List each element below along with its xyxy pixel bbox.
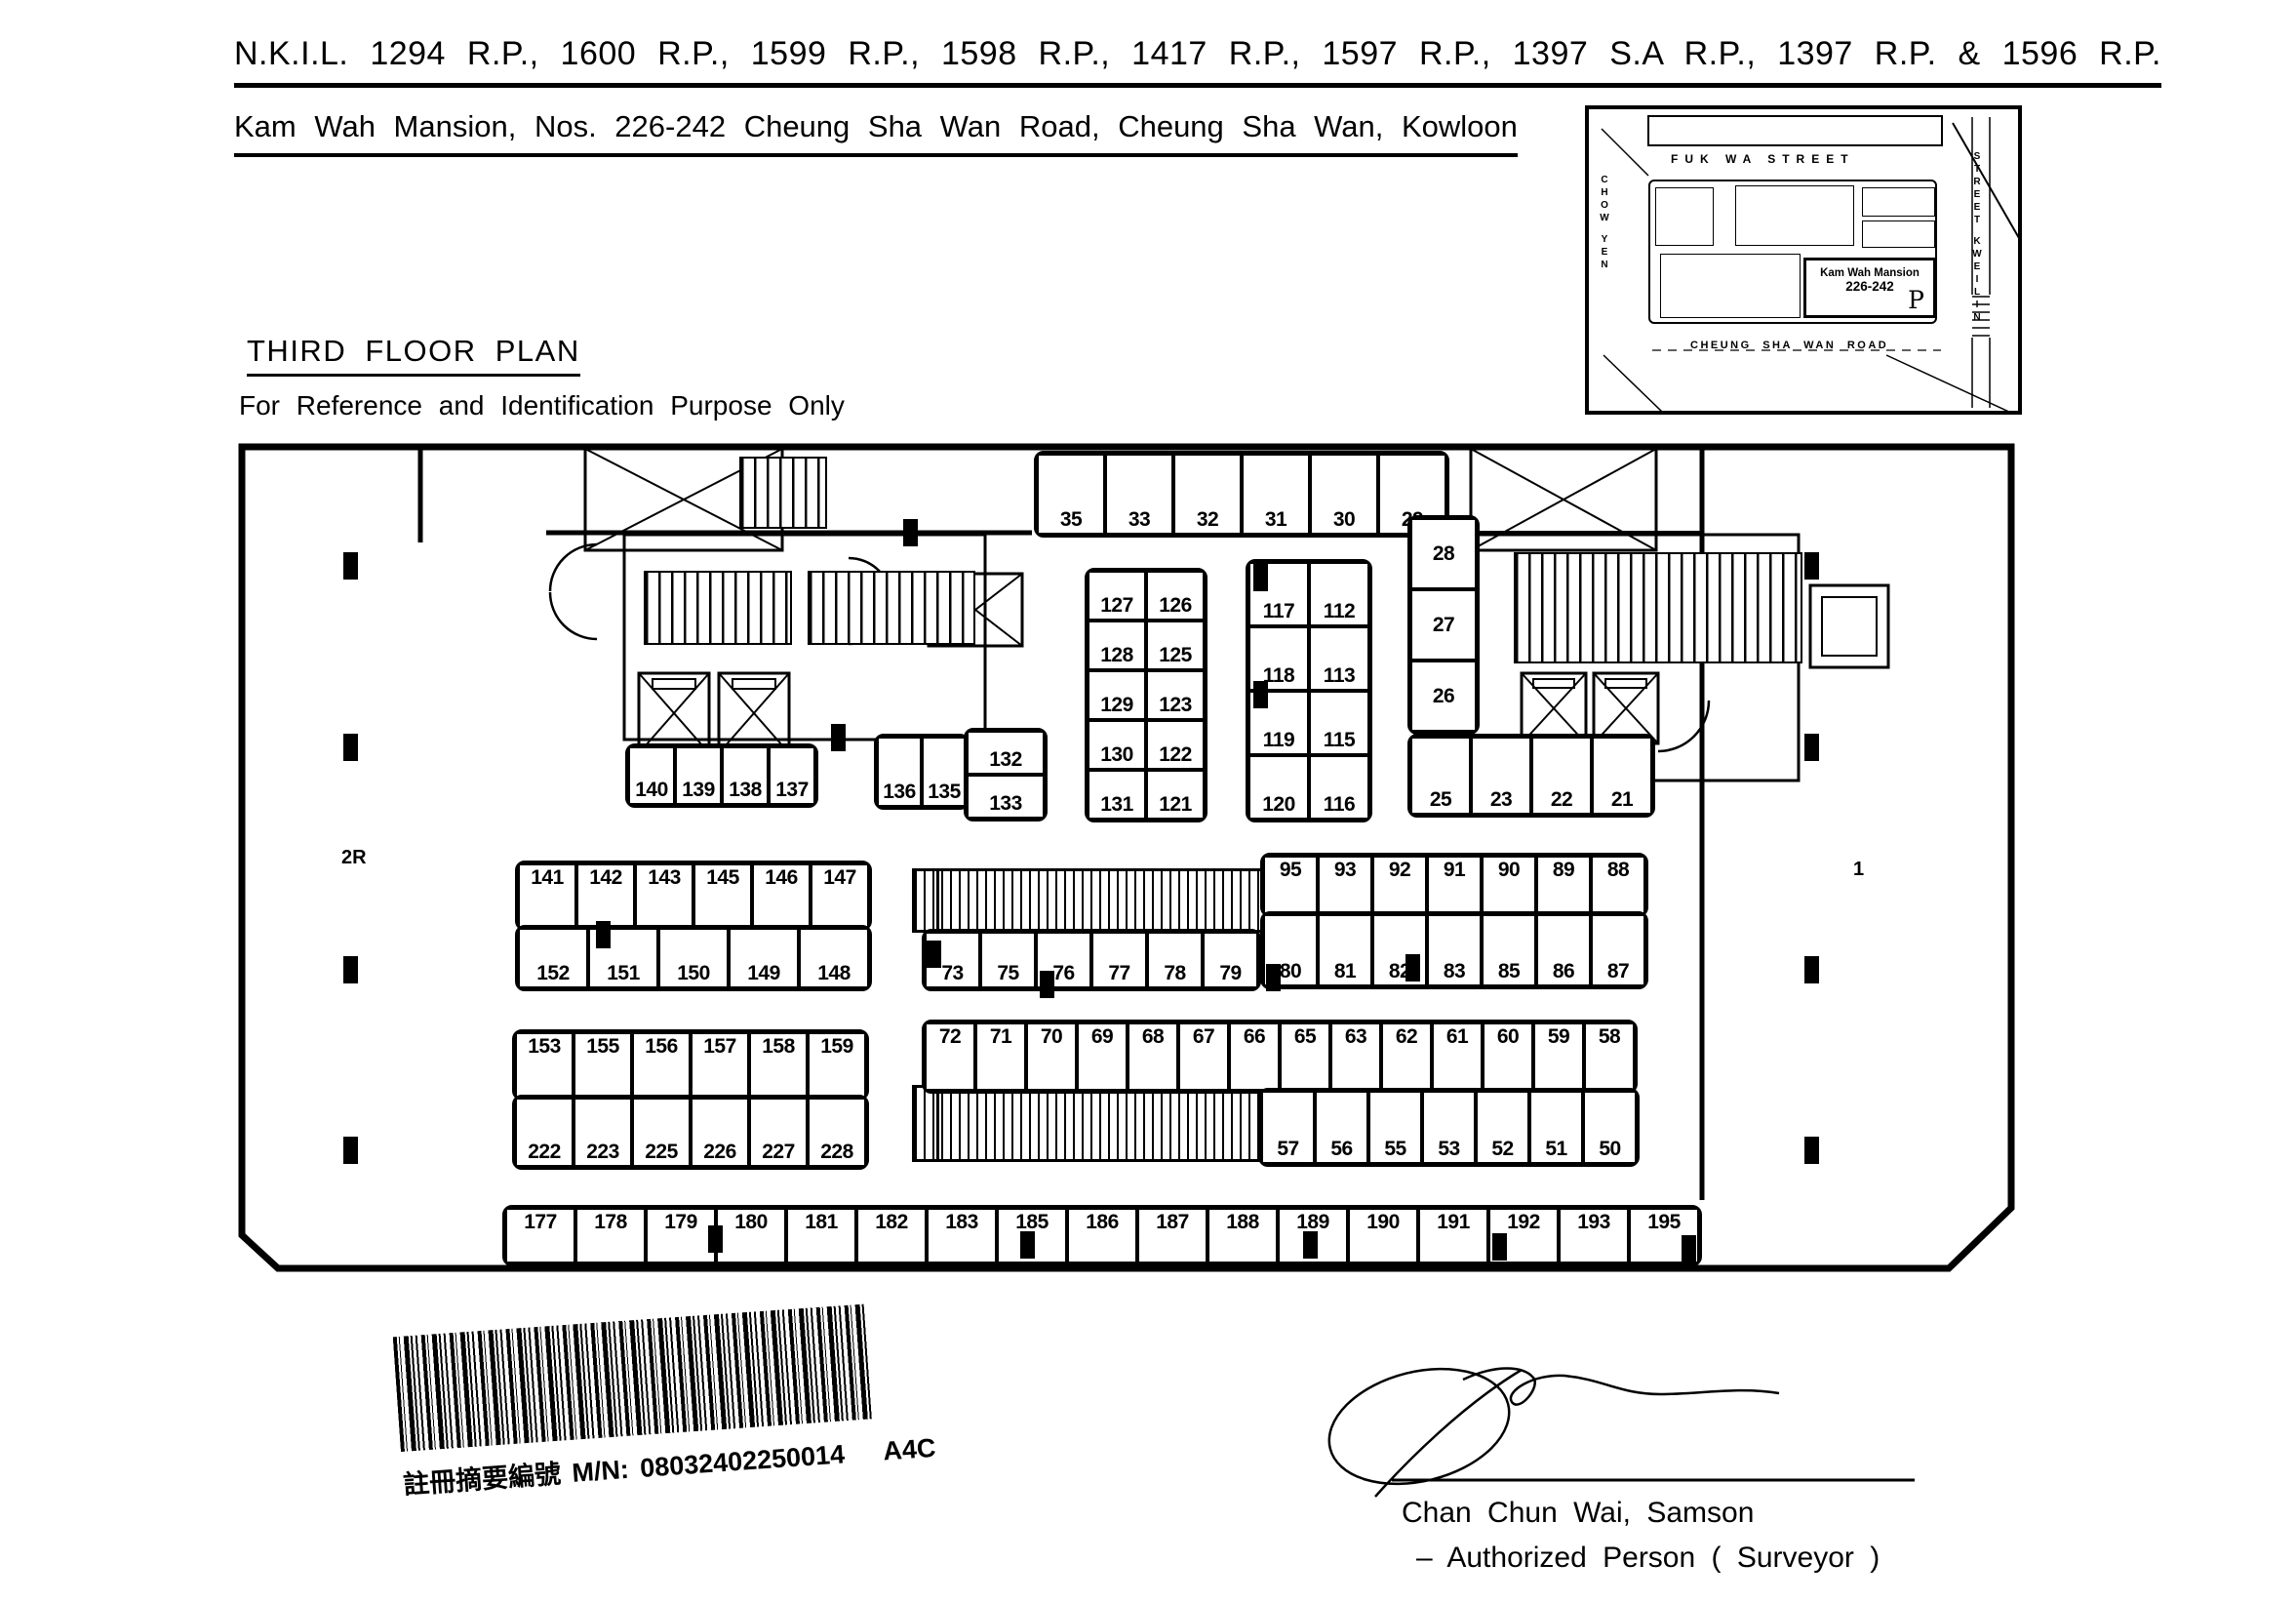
parking-bay-number: 225 [635, 1141, 688, 1164]
parking-bay: 181 [786, 1208, 856, 1263]
parking-bay: 228 [808, 1098, 866, 1167]
parking-bay: 113 [1309, 626, 1369, 691]
parking-bay: 53 [1422, 1091, 1476, 1164]
parking-bay: 155 [574, 1032, 632, 1098]
parking-bay-number: 142 [579, 866, 632, 890]
parking-bay: 129 [1088, 670, 1146, 720]
column-marker [1804, 734, 1819, 761]
map-building-block [1862, 220, 1935, 248]
map-building-block [1647, 115, 1943, 146]
parking-bay: 152 [518, 928, 588, 988]
column-marker [1266, 964, 1281, 991]
parking-bay-number: 228 [811, 1141, 863, 1164]
parking-bay: 67 [1178, 1022, 1229, 1091]
map-street-word: YEN [1597, 233, 1612, 271]
parking-bay-number: 51 [1532, 1138, 1580, 1161]
parking-bay-number: 122 [1149, 743, 1202, 767]
parking-bay-number: 91 [1430, 859, 1479, 882]
parking-bay: 57 [1261, 1091, 1315, 1164]
parking-bay-group-row-72: 7271706968676665636261605958 [922, 1020, 1638, 1094]
map-building-block [1735, 185, 1854, 246]
parking-bay-number: 52 [1479, 1138, 1526, 1161]
column-marker [708, 1225, 723, 1253]
signatory-role: – Authorized Person ( Surveyor ) [1416, 1542, 1880, 1575]
parking-bay: 140 [628, 746, 675, 805]
plan-title: THIRD FLOOR PLAN [247, 334, 580, 377]
parking-bay-group-strip-28: 282726 [1407, 515, 1480, 735]
stair-flight [644, 571, 792, 645]
parking-bay-number: 126 [1149, 594, 1202, 618]
map-building-block [1655, 187, 1714, 246]
column-marker [1040, 971, 1054, 998]
parking-bay-number: 188 [1210, 1211, 1275, 1234]
parking-bay: 75 [980, 932, 1036, 988]
parking-bay: 65 [1280, 1022, 1330, 1091]
map-street-cheung-sha-wan-road: CHEUNG SHA WAN ROAD [1690, 340, 1888, 351]
parking-bay: 61 [1432, 1022, 1483, 1091]
column-marker [343, 1137, 358, 1164]
column-marker [1253, 681, 1268, 708]
parking-bay-number: 159 [811, 1035, 863, 1059]
map-parking-symbol: P [1908, 286, 1924, 314]
parking-bay-number: 83 [1430, 960, 1479, 983]
parking-bay-number: 32 [1176, 508, 1239, 532]
column-marker [1804, 956, 1819, 983]
parking-bay: 51 [1529, 1091, 1583, 1164]
parking-bay: 223 [574, 1098, 632, 1167]
parking-bay: 92 [1372, 856, 1427, 914]
building-title: Kam Wah Mansion, Nos. 226-242 Cheung Sha… [234, 109, 1518, 157]
parking-bay: 30 [1310, 454, 1378, 535]
parking-bay: 23 [1471, 737, 1531, 815]
parking-bay: 91 [1427, 856, 1482, 914]
parking-bay-group-row-73: 737576777879 [922, 929, 1261, 991]
parking-bay-number: 88 [1594, 859, 1643, 882]
parking-bay: 187 [1137, 1208, 1207, 1263]
parking-bay-number: 116 [1312, 793, 1366, 817]
lot-title: N.K.I.L. 1294 R.P., 1600 R.P., 1599 R.P.… [234, 35, 2161, 88]
column-marker [1303, 1231, 1318, 1259]
map-kam-wah-name: Kam Wah Mansion [1806, 267, 1933, 279]
column-marker [1804, 1137, 1819, 1164]
utility-shaft [1810, 585, 1888, 667]
parking-bay-number: 145 [696, 866, 749, 890]
map-street-word: STREET [1969, 150, 1985, 226]
column-marker [1253, 564, 1268, 591]
parking-bay-number: 138 [725, 779, 766, 802]
parking-bay: 133 [967, 775, 1045, 819]
parking-bay-number: 53 [1425, 1138, 1473, 1161]
map-street-yen-chow: CHOWYEN [1597, 174, 1612, 280]
parking-bay-group-block-95-bottom: 80818283858687 [1260, 911, 1648, 989]
parking-bay-group-block-95-top: 95939291908988 [1260, 853, 1648, 917]
column-marker [1020, 1231, 1035, 1259]
parking-bay: 226 [691, 1098, 749, 1167]
parking-bay-number: 153 [518, 1035, 571, 1059]
parking-bay-group-row-25: 25232221 [1407, 734, 1655, 818]
parking-bay: 182 [856, 1208, 927, 1263]
parking-bay-number: 56 [1318, 1138, 1366, 1161]
parking-bay-number: 179 [649, 1211, 713, 1234]
parking-bay-group-row-57: 57565553525150 [1258, 1088, 1640, 1167]
parking-bay-number: 129 [1090, 694, 1143, 717]
parking-bay: 123 [1146, 670, 1205, 720]
parking-bay: 193 [1559, 1208, 1629, 1263]
parking-bay: 115 [1309, 691, 1369, 755]
parking-bay: 22 [1531, 737, 1592, 815]
parking-bay-number: 112 [1312, 600, 1366, 623]
map-building-block [1660, 254, 1801, 318]
parking-bay-number: 31 [1245, 508, 1307, 532]
parking-bay-number: 77 [1094, 962, 1144, 985]
parking-bay: 153 [515, 1032, 574, 1098]
parking-bay-number: 152 [521, 962, 585, 985]
stair-flight [808, 571, 975, 645]
parking-bay: 126 [1146, 571, 1205, 621]
parking-bay: 183 [927, 1208, 997, 1263]
parking-bay: 95 [1263, 856, 1318, 914]
escalator-lower [912, 1085, 1281, 1162]
parking-bay: 127 [1088, 571, 1146, 621]
parking-bay-number: 133 [970, 792, 1042, 816]
parking-bay-number: 136 [880, 781, 919, 804]
parking-bay: 141 [518, 863, 576, 928]
parking-bay-number: 137 [772, 779, 812, 802]
parking-bay-number: 25 [1413, 788, 1468, 812]
parking-bay-number: 226 [693, 1141, 746, 1164]
parking-bay-number: 150 [661, 962, 726, 985]
parking-bay-number: 177 [508, 1211, 573, 1234]
parking-bay-number: 35 [1040, 508, 1102, 532]
parking-bay: 50 [1583, 1091, 1637, 1164]
parking-bay-number: 178 [578, 1211, 643, 1234]
parking-bay-number: 146 [755, 866, 808, 890]
parking-bay-number: 181 [789, 1211, 853, 1234]
parking-bay: 148 [799, 928, 869, 988]
area-label-2R: 2R [341, 847, 367, 869]
stair-flight [739, 457, 827, 529]
parking-bay: 66 [1229, 1022, 1280, 1091]
parking-bay: 122 [1146, 720, 1205, 770]
parking-bay-number: 143 [638, 866, 691, 890]
parking-bay: 116 [1309, 755, 1369, 820]
parking-bay-number: 117 [1251, 600, 1306, 623]
parking-bay: 63 [1330, 1022, 1381, 1091]
parking-bay: 135 [922, 737, 967, 807]
parking-bay: 85 [1482, 914, 1536, 986]
parking-bay-number: 50 [1586, 1138, 1634, 1161]
parking-bay: 62 [1381, 1022, 1432, 1091]
parking-bay-number: 227 [752, 1141, 805, 1164]
parking-bay-number: 132 [970, 748, 1042, 772]
parking-bay: 191 [1418, 1208, 1488, 1263]
column-marker [596, 921, 611, 948]
parking-bay: 59 [1533, 1022, 1584, 1091]
parking-bay: 222 [515, 1098, 574, 1167]
parking-bay-number: 186 [1070, 1211, 1134, 1234]
parking-bay-number: 89 [1539, 859, 1588, 882]
parking-bay-number: 60 [1485, 1025, 1530, 1049]
parking-bay-number: 195 [1632, 1211, 1696, 1234]
parking-bay: 56 [1315, 1091, 1368, 1164]
parking-bay: 25 [1410, 737, 1471, 815]
map-street-kweilin: STREETKWEILIN [1969, 150, 1985, 333]
parking-bay: 128 [1088, 621, 1146, 670]
parking-bay-number: 79 [1206, 962, 1255, 985]
column-marker [903, 519, 918, 546]
parking-bay-number: 21 [1595, 788, 1649, 812]
parking-bay: 72 [925, 1022, 975, 1091]
parking-bay: 31 [1242, 454, 1310, 535]
parking-bay: 90 [1482, 856, 1536, 914]
signatory-name: Chan Chun Wai, Samson [1402, 1497, 1754, 1530]
parking-bay-number: 22 [1534, 788, 1589, 812]
parking-bay-number: 182 [859, 1211, 924, 1234]
lift-shaft [639, 673, 709, 753]
parking-bay: 112 [1309, 562, 1369, 626]
parking-bay: 86 [1536, 914, 1591, 986]
parking-bay-number: 125 [1149, 644, 1202, 667]
parking-bay: 87 [1591, 914, 1645, 986]
parking-bay-number: 120 [1251, 793, 1306, 817]
map-kam-wah-mansion-block: Kam Wah Mansion 226-242 P [1803, 258, 1936, 318]
parking-bay: 78 [1147, 932, 1203, 988]
column-marker [1682, 1235, 1696, 1262]
parking-bay-number: 57 [1264, 1138, 1312, 1161]
parking-bay-number: 121 [1149, 793, 1202, 817]
parking-bay: 143 [635, 863, 693, 928]
parking-bay-number: 55 [1371, 1138, 1419, 1161]
parking-bay: 156 [632, 1032, 691, 1098]
parking-bay-group-row-35-29: 353332313029 [1034, 451, 1449, 538]
parking-bay-number: 70 [1029, 1025, 1074, 1049]
parking-bay-number: 23 [1474, 788, 1528, 812]
parking-bay: 131 [1088, 770, 1146, 820]
parking-bay: 121 [1146, 770, 1205, 820]
column-marker [343, 734, 358, 761]
parking-bay-number: 149 [732, 962, 796, 985]
parking-bay-number: 139 [678, 779, 719, 802]
parking-bay-number: 71 [978, 1025, 1023, 1049]
parking-bay-number: 28 [1413, 542, 1474, 566]
parking-bay: 71 [975, 1022, 1026, 1091]
parking-bay-group-block-141-top: 141142143145146147 [515, 861, 872, 931]
parking-bay: 32 [1173, 454, 1242, 535]
parking-bay-number: 140 [631, 779, 672, 802]
stair-flight [1514, 552, 1802, 663]
registration-stamp: 註冊摘要編號 M/N: 08032402250014 A4C [393, 1302, 911, 1502]
parking-bay: 138 [722, 746, 769, 805]
parking-bay-number: 157 [693, 1035, 746, 1059]
parking-bay-group-island-127: 127126128125129123130122131121 [1085, 568, 1207, 822]
parking-bay-group-row-140: 140139138137 [625, 743, 818, 808]
parking-bay-number: 130 [1090, 743, 1143, 767]
area-label-1: 1 [1853, 859, 1864, 881]
column-marker [831, 724, 846, 751]
parking-bay-group-block-141-bottom: 152151150149148 [515, 925, 872, 991]
parking-bay: 158 [749, 1032, 808, 1098]
parking-bay: 55 [1368, 1091, 1422, 1164]
parking-bay: 58 [1584, 1022, 1635, 1091]
parking-bay-number: 148 [802, 962, 866, 985]
parking-bay: 150 [658, 928, 729, 988]
parking-bay-number: 69 [1080, 1025, 1125, 1049]
parking-bay-number: 90 [1484, 859, 1533, 882]
parking-bay-number: 222 [518, 1141, 571, 1164]
parking-bay-group-block-153-bottom: 222223225226227228 [512, 1095, 869, 1170]
parking-bay-number: 131 [1090, 793, 1143, 817]
parking-bay: 77 [1091, 932, 1147, 988]
parking-bay: 88 [1591, 856, 1645, 914]
parking-bay-number: 93 [1321, 859, 1369, 882]
parking-bay: 28 [1410, 518, 1477, 589]
parking-bay-number: 27 [1413, 614, 1474, 637]
parking-bay-number: 86 [1539, 960, 1588, 983]
parking-bay-number: 135 [925, 781, 964, 804]
parking-bay-number: 59 [1536, 1025, 1581, 1049]
parking-bay-number: 72 [928, 1025, 972, 1049]
parking-bay: 142 [576, 863, 635, 928]
parking-bay: 89 [1536, 856, 1591, 914]
parking-bay: 120 [1248, 755, 1309, 820]
parking-bay: 26 [1410, 661, 1477, 732]
parking-bay: 33 [1105, 454, 1173, 535]
parking-bay: 188 [1207, 1208, 1278, 1263]
parking-bay-number: 127 [1090, 594, 1143, 618]
map-building-block [1862, 187, 1935, 217]
parking-bay-group-row-136: 136135 [874, 734, 970, 810]
parking-bay-number: 87 [1594, 960, 1643, 983]
parking-bay: 69 [1077, 1022, 1128, 1091]
parking-bay-number: 192 [1491, 1211, 1556, 1234]
escalator-upper [912, 868, 1281, 933]
parking-bay-number: 78 [1150, 962, 1200, 985]
parking-bay-number: 191 [1421, 1211, 1485, 1234]
parking-bay: 149 [729, 928, 799, 988]
parking-bay-number: 26 [1413, 685, 1474, 708]
parking-bay: 146 [752, 863, 811, 928]
parking-bay: 35 [1037, 454, 1105, 535]
parking-bay-number: 180 [719, 1211, 783, 1234]
parking-bay: 125 [1146, 621, 1205, 670]
parking-bay: 81 [1318, 914, 1372, 986]
parking-bay: 186 [1067, 1208, 1137, 1263]
parking-bay-number: 113 [1312, 664, 1366, 688]
parking-bay: 190 [1348, 1208, 1418, 1263]
column-marker [1492, 1233, 1507, 1261]
parking-bay: 179 [646, 1208, 716, 1263]
column-marker [343, 956, 358, 983]
parking-bay: 227 [749, 1098, 808, 1167]
parking-bay: 68 [1128, 1022, 1178, 1091]
location-inset-map: FUK WA STREET Kam Wah Mansion 226-242 P … [1585, 105, 2022, 415]
parking-bay-number: 190 [1351, 1211, 1415, 1234]
parking-bay-number: 33 [1108, 508, 1170, 532]
parking-bay-number: 187 [1140, 1211, 1205, 1234]
parking-bay: 137 [769, 746, 815, 805]
parking-bay-number: 62 [1384, 1025, 1429, 1049]
parking-bay-number: 63 [1333, 1025, 1378, 1049]
map-street-word: KWEILIN [1969, 235, 1985, 324]
parking-bay: 70 [1026, 1022, 1077, 1091]
parking-bay-number: 193 [1562, 1211, 1626, 1234]
column-marker [343, 552, 358, 580]
parking-bay-number: 151 [591, 962, 655, 985]
parking-bay-number: 119 [1251, 729, 1306, 752]
parking-bay-number: 92 [1375, 859, 1424, 882]
column-marker [927, 941, 941, 968]
parking-bay-number: 67 [1181, 1025, 1226, 1049]
parking-bay: 130 [1088, 720, 1146, 770]
parking-bay: 136 [877, 737, 922, 807]
map-street-fuk-wa: FUK WA STREET [1671, 152, 1855, 166]
parking-bay: 21 [1592, 737, 1652, 815]
parking-bay-number: 156 [635, 1035, 688, 1059]
parking-bay-number: 65 [1283, 1025, 1327, 1049]
parking-bay: 83 [1427, 914, 1482, 986]
parking-bay-number: 158 [752, 1035, 805, 1059]
parking-bay: 180 [716, 1208, 786, 1263]
stamp-code: A4C [882, 1433, 936, 1466]
column-marker [1804, 552, 1819, 580]
parking-bay: 177 [505, 1208, 575, 1263]
parking-bay-number: 141 [521, 866, 574, 890]
plan-note: For Reference and Identification Purpose… [239, 390, 845, 421]
parking-bay-number: 147 [813, 866, 866, 890]
parking-bay: 60 [1483, 1022, 1533, 1091]
parking-bay-number: 85 [1484, 960, 1533, 983]
parking-bay-number: 58 [1587, 1025, 1632, 1049]
parking-bay: 225 [632, 1098, 691, 1167]
parking-bay-number: 123 [1149, 694, 1202, 717]
parking-bay-number: 128 [1090, 644, 1143, 667]
parking-bay: 159 [808, 1032, 866, 1098]
parking-bay-number: 183 [930, 1211, 994, 1234]
parking-bay-number: 75 [983, 962, 1033, 985]
parking-bay-number: 81 [1321, 960, 1369, 983]
parking-bay: 178 [575, 1208, 646, 1263]
parking-bay-number: 61 [1435, 1025, 1480, 1049]
parking-bay: 93 [1318, 856, 1372, 914]
parking-bay: 157 [691, 1032, 749, 1098]
parking-bay-group-block-153-top: 153155156157158159 [512, 1029, 869, 1101]
parking-bay-number: 95 [1266, 859, 1315, 882]
parking-bay-number: 115 [1312, 729, 1366, 752]
parking-bay-number: 66 [1232, 1025, 1277, 1049]
parking-bay: 27 [1410, 589, 1477, 661]
parking-bay: 132 [967, 731, 1045, 775]
parking-bay-group-stack-132: 132133 [964, 728, 1048, 822]
parking-bay-number: 68 [1130, 1025, 1175, 1049]
parking-bay: 147 [811, 863, 869, 928]
parking-bay-group-row-177: 1771781791801811821831851861871881891901… [502, 1205, 1702, 1266]
parking-bay: 145 [693, 863, 752, 928]
lift-shaft [719, 673, 789, 753]
parking-bay-number: 155 [576, 1035, 629, 1059]
parking-bay: 139 [675, 746, 722, 805]
parking-bay-number: 30 [1313, 508, 1375, 532]
parking-bay: 79 [1203, 932, 1258, 988]
column-marker [1405, 954, 1420, 982]
map-street-word: CHOW [1597, 174, 1612, 224]
parking-bay-number: 223 [576, 1141, 629, 1164]
parking-bay: 52 [1476, 1091, 1529, 1164]
